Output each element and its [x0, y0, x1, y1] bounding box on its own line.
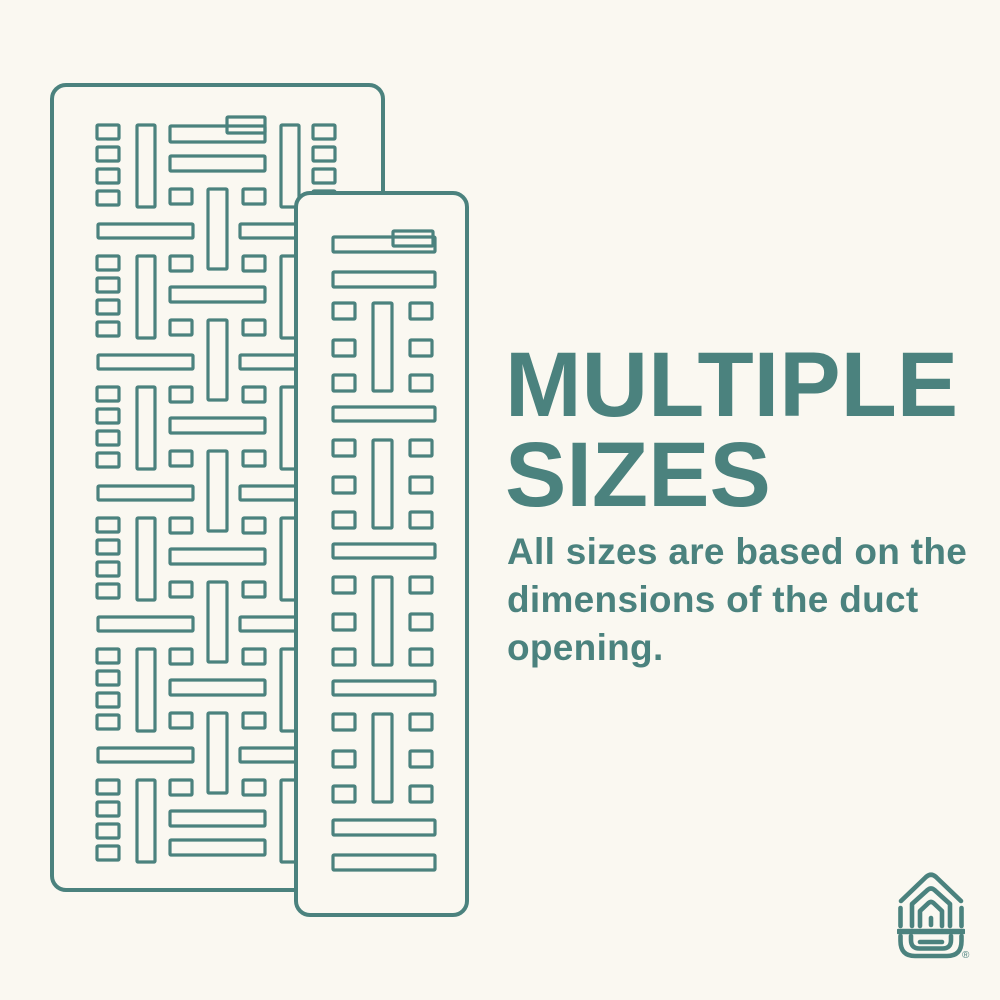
vent-slot: [97, 387, 119, 401]
vent-slot: [208, 189, 227, 269]
small-register-outline: [296, 193, 467, 915]
vent-slot: [98, 617, 193, 631]
vent-slot: [97, 780, 119, 794]
vent-slot: [170, 189, 192, 204]
subtext: All sizes are based on the dimensions of…: [507, 528, 967, 672]
registered-trademark-symbol: ®: [962, 950, 969, 961]
vent-slot: [98, 748, 193, 762]
vent-slot: [97, 431, 119, 445]
promo-card: MULTIPLE SIZES All sizes are based on th…: [0, 0, 1000, 1000]
vent-slot: [208, 451, 227, 531]
vent-slot: [170, 680, 265, 695]
vent-slot: [243, 387, 265, 402]
vent-slot: [170, 549, 265, 564]
vent-slot: [97, 409, 119, 423]
vent-slot: [243, 582, 265, 597]
vent-slot: [170, 518, 192, 533]
vent-slot: [97, 169, 119, 183]
vent-slot: [97, 125, 119, 139]
vent-slot: [313, 125, 335, 139]
vent-slot: [97, 693, 119, 707]
vent-slot: [97, 256, 119, 270]
vent-slot: [97, 649, 119, 663]
vent-slot: [97, 671, 119, 685]
vent-slot: [170, 320, 192, 335]
vent-slot: [98, 486, 193, 500]
vent-slot: [170, 256, 192, 271]
vent-slot: [97, 300, 119, 314]
subtext-line-2: dimensions of the duct: [507, 576, 967, 624]
vent-slot: [170, 811, 265, 826]
vent-slot: [97, 147, 119, 161]
headline: MULTIPLE SIZES: [505, 340, 958, 520]
vent-slot: [97, 802, 119, 816]
vent-slot: [170, 713, 192, 728]
vent-slot: [208, 582, 227, 662]
vent-slot: [97, 584, 119, 598]
headline-line-2: SIZES: [505, 430, 958, 520]
headline-line-1: MULTIPLE: [505, 340, 958, 430]
vent-slot: [170, 418, 265, 433]
vent-slot: [208, 320, 227, 400]
vent-slot: [97, 453, 119, 467]
vent-slot: [97, 562, 119, 576]
vent-slot: [170, 387, 192, 402]
vent-slot: [170, 582, 192, 597]
vent-slot: [243, 256, 265, 271]
register-plate-border: [296, 193, 467, 915]
vent-slot: [170, 451, 192, 466]
vent-slot: [137, 387, 155, 469]
vent-slot: [97, 322, 119, 336]
vent-slot: [243, 518, 265, 533]
vent-slot: [313, 147, 335, 161]
vent-slot: [97, 824, 119, 838]
vent-slot: [97, 278, 119, 292]
vent-slot: [243, 451, 265, 466]
subtext-line-1: All sizes are based on the: [507, 528, 967, 576]
vent-slot: [243, 649, 265, 664]
vent-slot: [243, 713, 265, 728]
vent-slot: [170, 780, 192, 795]
vent-slot: [137, 125, 155, 207]
vent-slot: [281, 125, 299, 207]
vent-slot: [97, 191, 119, 205]
vent-slot: [97, 846, 119, 860]
vent-slot: [137, 780, 155, 862]
vent-slot: [137, 256, 155, 338]
vent-slot: [170, 287, 265, 302]
vent-slot: [98, 355, 193, 369]
vent-slot: [97, 715, 119, 729]
vent-slot: [170, 840, 265, 855]
vent-slot: [170, 156, 265, 171]
vent-slot: [243, 320, 265, 335]
vent-slot: [97, 518, 119, 532]
house-vent-logo-icon: [897, 870, 965, 962]
subtext-line-3: opening.: [507, 624, 967, 672]
vent-slot: [97, 540, 119, 554]
vent-slot: [170, 649, 192, 664]
vent-slot: [98, 224, 193, 238]
vent-slot: [137, 518, 155, 600]
vent-slot: [243, 780, 265, 795]
vent-slot: [137, 649, 155, 731]
vent-slot: [313, 169, 335, 183]
vent-slot: [208, 713, 227, 793]
vent-slot: [243, 189, 265, 204]
